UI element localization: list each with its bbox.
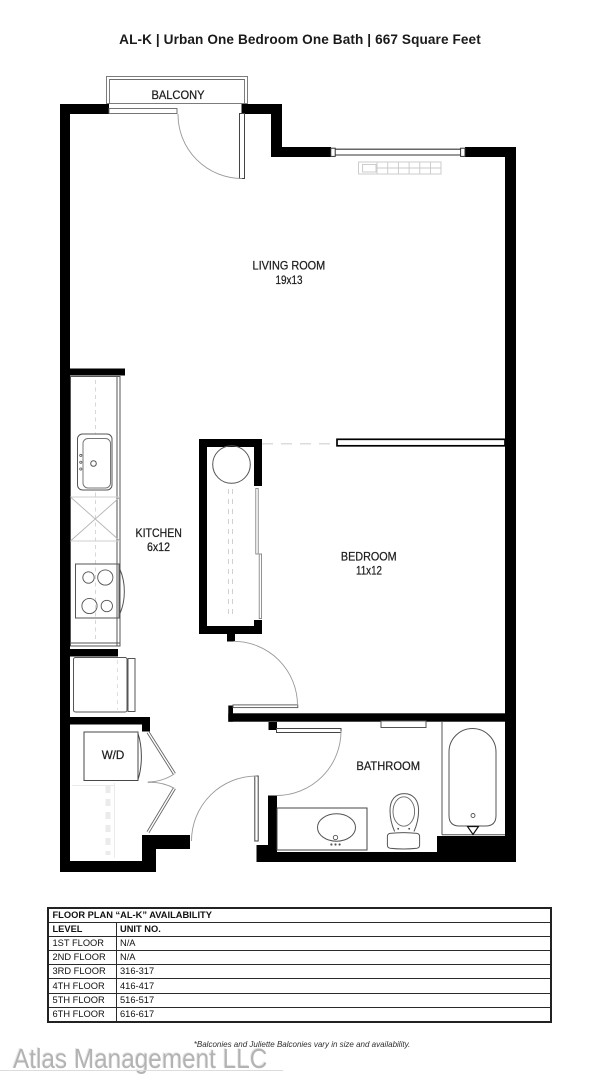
svg-text:BALCONY: BALCONY [151, 88, 204, 102]
svg-text:KITCHEN: KITCHEN [136, 526, 182, 540]
svg-text:BATHROOM: BATHROOM [356, 759, 420, 773]
svg-text:19x13: 19x13 [276, 273, 303, 287]
svg-text:6x12: 6x12 [147, 540, 170, 554]
svg-text:11x12: 11x12 [356, 564, 382, 578]
svg-text:W/D: W/D [102, 748, 125, 762]
svg-text:BEDROOM: BEDROOM [341, 550, 397, 564]
svg-text:LIVING ROOM: LIVING ROOM [253, 259, 326, 273]
